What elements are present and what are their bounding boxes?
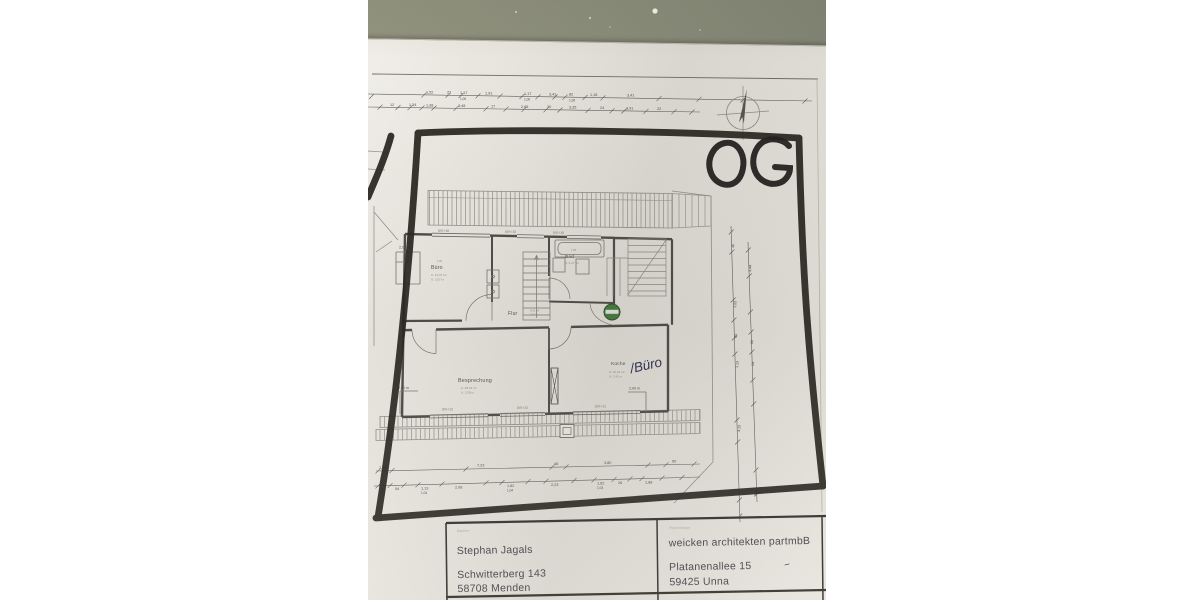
dim-sublabel: 1,00 [569,98,575,102]
client-field-label: Bauherr [457,529,470,533]
room-area: A: 15,15 m² [609,370,625,374]
dim-label: 86 [750,340,754,344]
dim-label: 30 [547,105,551,109]
room-name-bad: Bad [565,254,574,260]
dim-label: 36 [731,244,735,248]
og-handwritten-label [709,139,790,185]
dim-label: 4,10 [737,425,741,432]
dim-sublabel: 1,04 [421,491,427,495]
dim-label: 1,13 [421,487,428,491]
floor-plan-photo: 1,52 22 1,17 1,91 1,17 3,41 82 1,18 3,41… [368,0,826,600]
room-area: A: 28,24 m² [461,386,477,390]
handwritten-tick: ~ [783,559,792,571]
dim-label: 1,52 [426,90,433,94]
dim-label: 2,08 [455,486,462,490]
room-area: A: 13,74 m² [431,273,447,277]
dim-label: 3,35 [569,106,576,110]
client-name: Stephan Jagals [457,544,533,557]
terrace-hatch-top [428,191,711,229]
architect-name: weicken architekten partmbB [668,535,811,549]
handwritten-kueche-buero: /Büro [628,354,664,376]
brh-label: BRH 82 [442,408,453,412]
dim-label: 1,88 [645,480,652,484]
dim-label: 2,65 [521,105,528,109]
dim-label: 1,82 [507,484,514,488]
dim-label: 1,34 [409,103,416,107]
dim-label: 3,91 [626,107,633,111]
dim-label: 24 [600,106,604,110]
dim-label: 1,17 [524,92,531,96]
dim-label: 24 [751,362,755,366]
client-city: 58708 Menden [457,582,530,595]
room-name-besprechung: Besprechung [458,378,492,384]
dim-label: 1,18 [590,93,597,97]
dim-label: 12 [390,103,394,107]
dim-label: 1,91 [485,91,492,95]
dim-label: 46 [554,462,558,466]
dim-label: 3,80 [604,461,611,465]
room-area: U: 2,57 m [431,278,445,282]
window-sill-labels: BRH 88 BRH 88 BRH 88 BRH 82 BRH 82 BRH 8… [438,229,606,412]
dim-label: 90 [734,334,738,338]
room-name-flur: Flur [508,311,518,317]
dim-label: 82 [569,93,573,97]
green-stamp-icon [604,304,620,320]
desk-dust [515,8,701,30]
dim-label: 54 [395,487,399,491]
title-block: Bauherr Planverfasser Stephan Jagals Sch… [446,516,826,600]
room-number: 1.02 [437,259,443,263]
room-area: A: 4,47 m² [565,261,579,265]
room-area: U: 2,59 m [461,391,475,395]
terrace-hatch-bottom [376,410,700,441]
room-area: 2,64 m [530,313,539,317]
room-area: 6,41 m² [530,309,539,313]
right-dimension-chains [729,226,760,522]
brh-label: BRH 81 [595,404,606,408]
sheet-frame [372,74,822,512]
dim-label: 3,41 [627,94,634,98]
dim-label: 22 [657,107,661,111]
room-area: U: 2,41 m [609,375,623,379]
dim-label: 7,23 [477,464,484,468]
dim-label: 1,17 [460,91,467,95]
marker-frame [368,131,823,518]
dim-label: 1,13 [735,361,739,368]
plan-drawing: 1,52 22 1,17 1,91 1,17 3,41 82 1,18 3,41… [368,0,826,600]
dim-label: 1,38 [426,103,433,107]
room-name-kueche: Küche [611,361,626,367]
dim-label: 50 [672,459,676,463]
dim-sublabel: 1,04 [597,486,603,490]
brh-label: BRH 88 [553,231,564,235]
stair-right [607,239,666,296]
architect-city: 59425 Unna [669,575,729,588]
roof-outline-right [672,191,713,503]
dim-label: 1,03 [733,301,737,308]
dim-sublabel: 1,04 [507,489,513,493]
room-name-buero: Büro [431,265,443,271]
dim-label: 17 [491,104,495,108]
dim-label: 22 [447,91,451,95]
brh-label: BRH 88 [438,229,449,233]
height-note: 2,00 m [629,387,640,391]
photo-canvas: 1,52 22 1,17 1,91 1,17 3,41 82 1,18 3,41… [0,0,1200,600]
dim-sublabel: 1,00 [524,98,530,102]
client-street: Schwitterberg 143 [457,568,546,582]
dim-label: 3,44 [748,265,752,272]
architect-street: Platanenallee 15 [669,560,751,573]
architect-field-label: Planverfasser [669,526,691,530]
room-number: 1.05 [571,248,577,252]
dim-label: 3,41 [549,92,556,96]
brh-label: BRH 82 [517,406,528,410]
height-note: 2,00 m [398,386,409,390]
dim-label: 26 [618,481,622,485]
brh-label: BRH 88 [505,230,516,234]
dim-sublabel: 1,00 [460,97,466,101]
dim-label: 3,48 [458,104,465,108]
dim-label: 2,23 [551,483,558,487]
